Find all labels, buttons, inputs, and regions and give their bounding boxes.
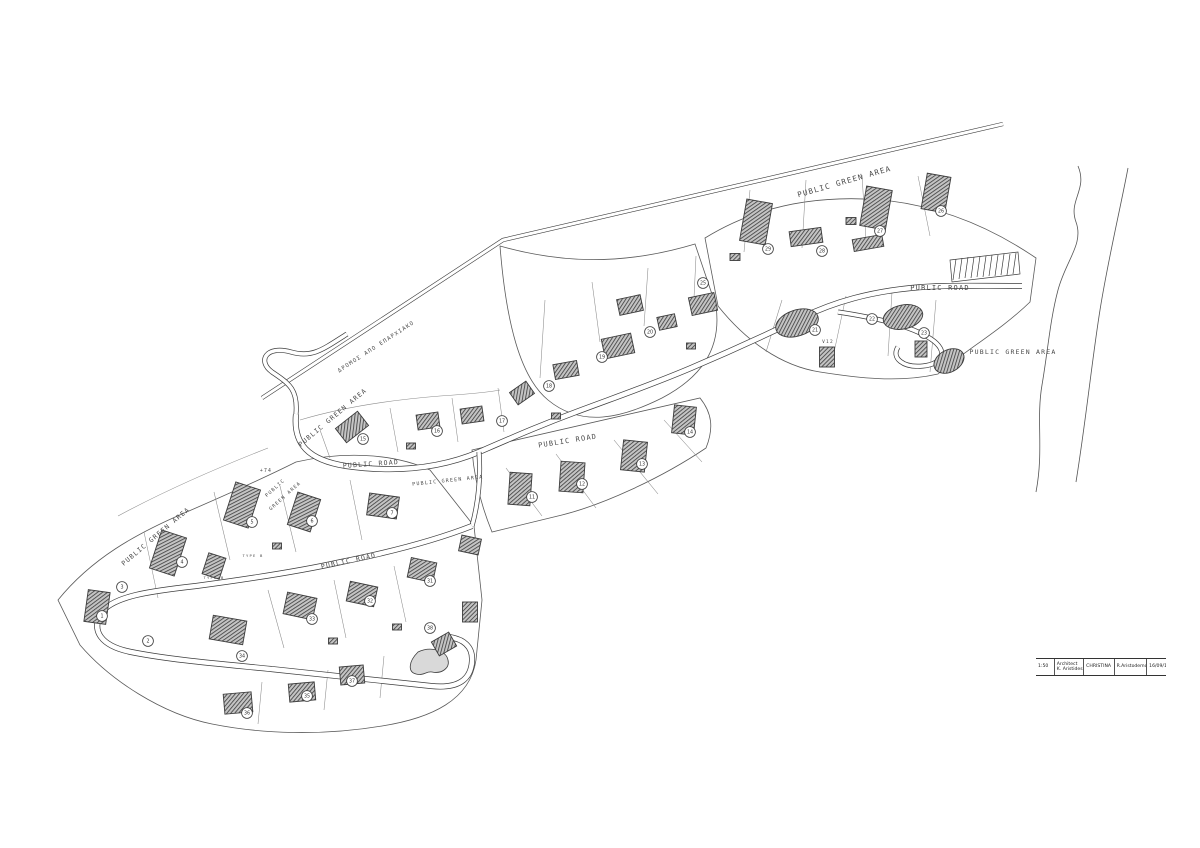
villas-layer: [84, 173, 968, 714]
plot-number: 1: [100, 614, 103, 620]
plot-marker: 27: [875, 226, 886, 237]
plot-number: 36: [244, 711, 250, 717]
plot-marker: 19: [597, 352, 608, 363]
plot-number: 18: [546, 384, 552, 390]
plot-number: 25: [700, 281, 706, 287]
plan-label: PUBLIC ROAD: [320, 551, 377, 571]
plan-label: PUBLIC ROAD: [910, 284, 970, 292]
plot-marker: 35: [302, 691, 313, 702]
villa-footprint: [510, 381, 535, 405]
villa-footprint: [273, 543, 282, 549]
villa-footprint: [407, 443, 416, 449]
plot-marker: 25: [698, 278, 709, 289]
plan-label: +74: [260, 468, 272, 474]
plot-marker: 22: [867, 314, 878, 325]
villa-footprint: [820, 347, 835, 367]
plot-marker: 17: [497, 416, 508, 427]
access-road: [262, 124, 1003, 398]
plan-label: PUBLIC GREEN AREA: [412, 474, 484, 487]
villa-footprint: [329, 638, 338, 644]
plot-marker: 26: [936, 206, 947, 217]
plan-label: ΔΡΟΜΟΣ ΑΠΟ ΕΠΑΡΧΙΑΚΟ: [337, 320, 416, 374]
villa-footprint: [846, 218, 856, 225]
plot-marker: 13: [637, 459, 648, 470]
plot-number: 11: [529, 495, 535, 501]
plot-marker: 5: [247, 517, 258, 528]
plot-marker: 12: [577, 479, 588, 490]
title-block-architect: Architect K. Aristides: [1054, 659, 1083, 675]
plot-number: 2: [146, 639, 149, 645]
plot-marker: 6: [307, 516, 318, 527]
plot-number: 17: [499, 419, 505, 425]
plot-number: 35: [304, 694, 310, 700]
plot-marker: 33: [307, 614, 318, 625]
plot-number: 15: [360, 437, 366, 443]
plot-number: 12: [579, 482, 585, 488]
plot-marker: 14: [685, 427, 696, 438]
plot-number: 28: [819, 249, 825, 255]
villa-footprint: [552, 413, 561, 419]
pool-structure: [881, 301, 925, 333]
plot-marker: 4: [177, 557, 188, 568]
villa-footprint: [687, 343, 696, 349]
villa-footprint: [209, 615, 247, 645]
parking-strip: [950, 252, 1020, 282]
plot-marker: 18: [544, 381, 555, 392]
plot-marker: 3: [117, 582, 128, 593]
architect-name: K. Aristides: [1057, 667, 1081, 672]
plot-number: 31: [427, 579, 433, 585]
plan-label: TYPE B: [204, 575, 225, 580]
plot-number: 14: [687, 430, 693, 436]
villa-footprint: [921, 173, 951, 213]
site-plan-drawing: 2928272625212223201918171615111213147654…: [0, 0, 1200, 848]
villa-footprint: [459, 535, 482, 555]
plot-number: 7: [390, 511, 393, 517]
plot-number: 13: [639, 462, 645, 468]
plot-number: 3: [120, 585, 123, 591]
plot-number: 20: [647, 330, 653, 336]
plot-marker: 28: [817, 246, 828, 257]
plan-label: PUBLIC GREEN AREA: [970, 348, 1057, 356]
plot-marker: 16: [432, 426, 443, 437]
plot-marker: 1: [97, 611, 108, 622]
plot-marker: 11: [527, 492, 538, 503]
villa-footprint: [730, 254, 740, 261]
villa-footprint: [657, 314, 677, 330]
plot-marker: 23: [919, 328, 930, 339]
plot-number: 37: [349, 679, 355, 685]
plot-number: 32: [367, 599, 373, 605]
hairpin-connector-road: [265, 334, 347, 414]
plot-number: 27: [877, 229, 883, 235]
plot-number: 23: [921, 331, 927, 337]
plot-number: 33: [309, 617, 315, 623]
villa-footprint: [463, 602, 478, 622]
villa-footprint: [553, 361, 579, 380]
plot-marker: 31: [425, 576, 436, 587]
villa-footprint: [740, 199, 773, 245]
title-block-client: R.Aristodemou: [1114, 659, 1147, 675]
plot-number: 29: [765, 247, 771, 253]
plot-marker: 15: [358, 434, 369, 445]
villa-footprint: [393, 624, 402, 630]
client-name: R.Aristodemou: [1117, 664, 1145, 669]
title-block: 1:50 Architect K. Aristides CHRISTINA R.…: [1036, 658, 1166, 676]
villa-footprint: [287, 492, 320, 532]
plot-number: 22: [869, 317, 875, 323]
villa-footprint: [860, 186, 893, 230]
plot-subdivision-lines: [144, 175, 936, 724]
plot-number: 21: [812, 328, 818, 334]
site-plan-sheet: 2928272625212223201918171615111213147654…: [0, 0, 1200, 848]
title-block-scale: 1:50: [1036, 659, 1054, 675]
stream-line-west: [1036, 166, 1081, 492]
plot-marker: 2: [143, 636, 154, 647]
plot-number: 34: [239, 654, 245, 660]
villa-footprint: [617, 295, 644, 316]
villa-footprint: [852, 234, 884, 251]
plot-number: 19: [599, 355, 605, 361]
pool-structure: [930, 344, 969, 378]
plot-number: 16: [434, 429, 440, 435]
villa-footprint: [915, 341, 927, 357]
plot-number: 6: [310, 519, 313, 525]
plan-label: V12: [822, 339, 834, 345]
plot-marker: 7: [387, 508, 398, 519]
villa-footprint: [460, 406, 484, 424]
labels-layer: PUBLIC GREEN AREAPUBLIC ROADPUBLIC GREEN…: [120, 164, 1057, 580]
plot-marker: 36: [242, 708, 253, 719]
plot-marker: 38: [425, 623, 436, 634]
villa-footprint: [688, 292, 717, 315]
plot-number: 5: [250, 520, 253, 526]
plot-number: 38: [427, 626, 433, 632]
plot-marker: 32: [365, 596, 376, 607]
villa-footprint: [789, 227, 823, 246]
date-value: 16/09/15: [1149, 664, 1164, 669]
plan-label: PUBLIC ROAD: [538, 432, 598, 449]
plot-number: 4: [180, 560, 183, 566]
plot-number: 26: [938, 209, 944, 215]
project-name: CHRISTINA: [1086, 664, 1111, 669]
plot-marker: 37: [347, 676, 358, 687]
scale-value: 1:50: [1038, 664, 1052, 669]
title-block-project: CHRISTINA: [1083, 659, 1113, 675]
plot-marker: 29: [763, 244, 774, 255]
plot-marker: 34: [237, 651, 248, 662]
stream-line-east: [1076, 168, 1128, 482]
plot-marker: 21: [810, 325, 821, 336]
title-block-date: 16/09/15: [1146, 659, 1166, 675]
plot-marker: 20: [645, 327, 656, 338]
plan-label: TYPE B: [243, 553, 264, 558]
